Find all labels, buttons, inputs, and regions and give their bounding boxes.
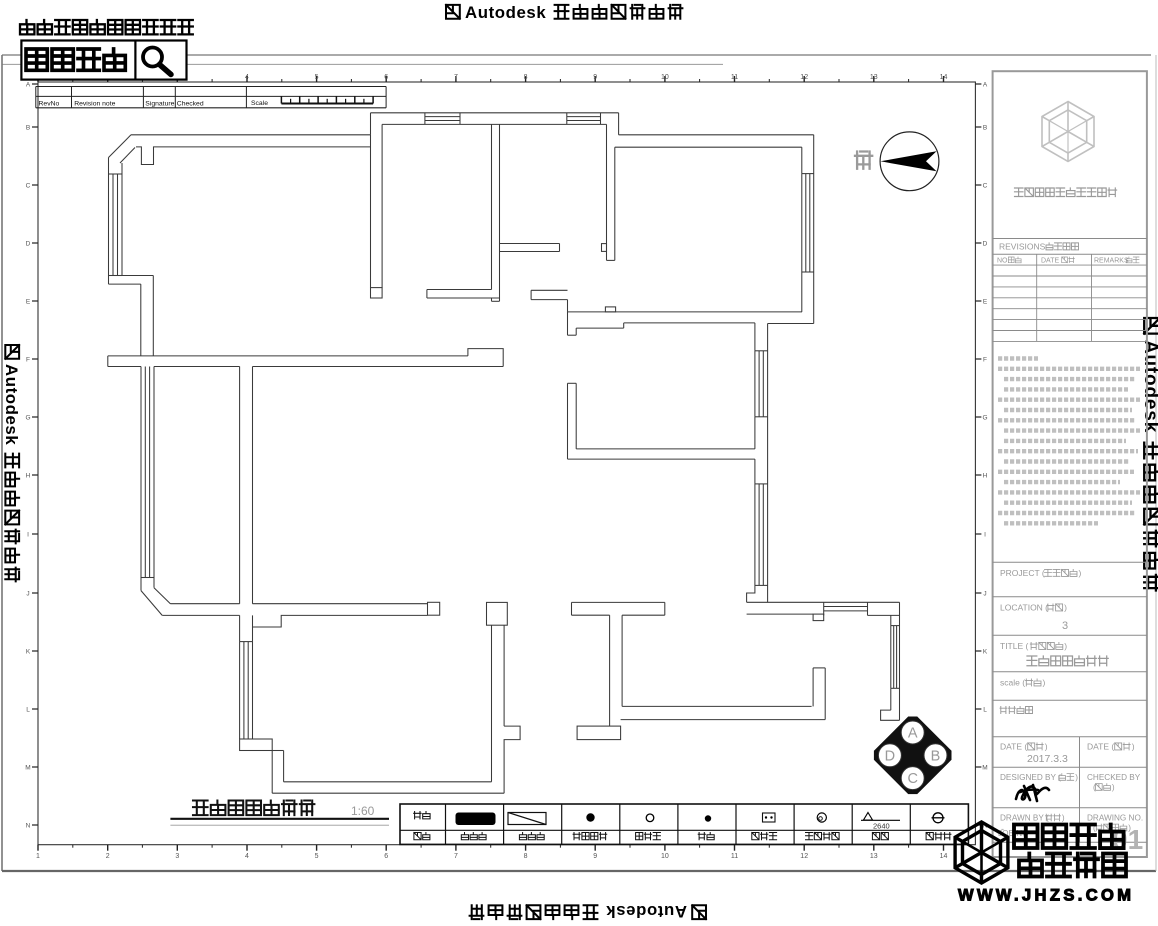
svg-text:9: 9 (593, 74, 597, 81)
svg-text:B: B (931, 748, 941, 764)
svg-text:6: 6 (384, 74, 388, 81)
svg-text:8: 8 (524, 853, 528, 860)
svg-text:G: G (982, 415, 987, 422)
svg-text:): ) (1045, 742, 1048, 752)
svg-text:6: 6 (384, 853, 388, 860)
svg-text:): ) (1043, 678, 1046, 688)
svg-text:L: L (983, 707, 987, 714)
svg-text:C: C (983, 183, 988, 190)
svg-text:): ) (1112, 783, 1115, 792)
svg-text:TITLE (: TITLE ( (1000, 641, 1029, 651)
svg-text:13: 13 (870, 74, 878, 81)
svg-text:K: K (983, 649, 988, 656)
svg-text:J: J (983, 591, 986, 598)
svg-text:7: 7 (454, 853, 458, 860)
svg-text:3: 3 (175, 853, 179, 860)
svg-text:2: 2 (106, 853, 110, 860)
svg-text:DATE: DATE (1041, 258, 1059, 265)
svg-text:Autodesk: Autodesk (606, 902, 687, 921)
svg-text:REVISIONS: REVISIONS (999, 242, 1046, 252)
svg-text:Checked: Checked (177, 101, 204, 108)
svg-text:Signature: Signature (145, 101, 174, 108)
svg-text:Revision note: Revision note (74, 101, 115, 108)
svg-text:D: D (885, 748, 895, 764)
svg-text:13: 13 (870, 853, 878, 860)
svg-text:10: 10 (661, 74, 669, 81)
svg-text:11: 11 (731, 853, 738, 860)
svg-text:14: 14 (940, 853, 948, 860)
svg-text:PROJECT (: PROJECT ( (1000, 568, 1045, 578)
svg-text:7: 7 (454, 74, 458, 81)
svg-text:I: I (984, 532, 986, 539)
svg-text:4: 4 (245, 853, 249, 860)
svg-text:3: 3 (1062, 620, 1068, 632)
svg-text:L: L (26, 707, 30, 714)
svg-text:Autodesk: Autodesk (1140, 340, 1158, 433)
svg-text:NO.: NO. (997, 258, 1010, 265)
svg-text:1:60: 1:60 (351, 804, 375, 818)
svg-text:D: D (26, 241, 31, 248)
svg-text:A: A (26, 82, 31, 89)
svg-text:Scale: Scale (251, 100, 268, 107)
svg-text:B: B (26, 125, 30, 132)
svg-text:DRAWN BY (: DRAWN BY ( (1000, 814, 1049, 823)
svg-text:E: E (983, 299, 988, 306)
svg-text:C: C (907, 771, 917, 787)
svg-text:4: 4 (245, 74, 249, 81)
svg-text:DATE (: DATE ( (1000, 742, 1027, 752)
svg-text:11: 11 (731, 74, 738, 81)
svg-text:10: 10 (661, 853, 669, 860)
svg-text:14: 14 (940, 74, 948, 81)
svg-text:DRAWING NO.: DRAWING NO. (1087, 814, 1143, 823)
svg-text:): ) (1132, 742, 1135, 752)
svg-text:5: 5 (315, 74, 319, 81)
svg-text:CHECKED BY: CHECKED BY (1087, 773, 1141, 782)
svg-text:K: K (26, 649, 31, 656)
svg-text:LOCATION (: LOCATION ( (1000, 603, 1048, 613)
svg-text:1: 1 (36, 853, 40, 860)
svg-text:): ) (1075, 773, 1078, 782)
svg-text:DESIGNED BY (: DESIGNED BY ( (1000, 773, 1061, 782)
svg-text:8: 8 (524, 74, 528, 81)
svg-text:G: G (25, 415, 30, 422)
svg-text:J: J (26, 591, 29, 598)
svg-text:2640: 2640 (873, 822, 890, 831)
svg-text:H: H (26, 473, 31, 480)
svg-text:): ) (1064, 641, 1067, 651)
svg-text:12: 12 (800, 74, 808, 81)
svg-text:I: I (27, 532, 29, 539)
svg-text:A: A (983, 82, 988, 89)
svg-text:E: E (26, 299, 31, 306)
svg-text:M: M (982, 765, 987, 772)
svg-text:RevNo: RevNo (39, 101, 60, 108)
svg-text:REMARKS: REMARKS (1094, 258, 1129, 265)
svg-text:): ) (1079, 568, 1082, 578)
svg-text:Autodesk: Autodesk (465, 3, 546, 22)
svg-text:): ) (1062, 814, 1065, 823)
svg-text:B: B (983, 125, 987, 132)
svg-text:F: F (983, 357, 987, 364)
svg-text:WWW.JHZS.COM: WWW.JHZS.COM (958, 887, 1131, 905)
svg-text:C: C (26, 183, 31, 190)
svg-text:F: F (26, 357, 30, 364)
svg-text:DATE (: DATE ( (1087, 742, 1114, 752)
svg-text:A: A (908, 726, 918, 742)
svg-text:N: N (26, 823, 31, 830)
svg-text:9: 9 (593, 853, 597, 860)
svg-text:Autodesk: Autodesk (2, 364, 21, 445)
svg-text:5: 5 (315, 853, 319, 860)
svg-text:M: M (25, 765, 30, 772)
svg-text:D: D (983, 241, 988, 248)
svg-text:): ) (1064, 603, 1067, 613)
svg-text:scale (: scale ( (1000, 678, 1025, 688)
svg-text:12: 12 (800, 853, 808, 860)
svg-text:H: H (983, 473, 988, 480)
svg-text:2017.3.3: 2017.3.3 (1027, 753, 1068, 765)
